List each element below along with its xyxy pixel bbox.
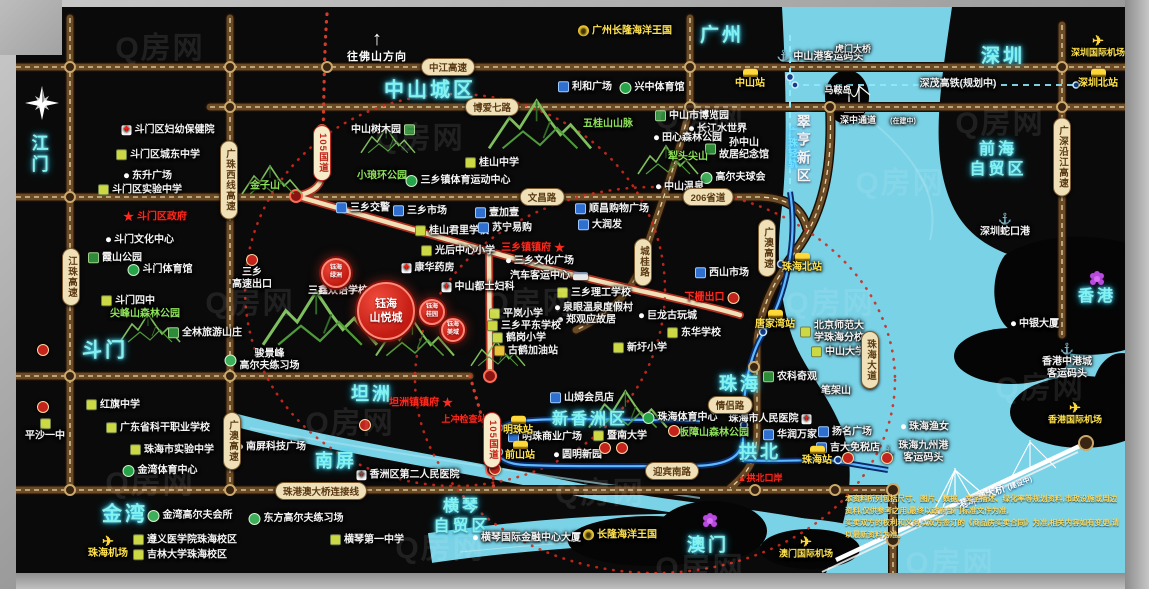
landmark: 农科奇观 [763, 371, 817, 383]
landmark: 高尔夫球会 [701, 172, 766, 184]
landmark-label: 斗门文化中心 [114, 234, 174, 246]
school-icon [40, 418, 51, 429]
landmark-label: 古鹤加油站 [508, 345, 558, 357]
plane-icon: ✈ [102, 535, 114, 547]
landmark-label: 兴中体育馆 [635, 82, 685, 94]
sport-icon [406, 175, 418, 187]
landmark-label: 遵义医学院珠海校区 [147, 534, 237, 546]
gas-icon [494, 346, 505, 357]
flower-icon [707, 518, 713, 524]
region-label: 中山城区 [384, 79, 476, 104]
landmark: 斗门区城东中学 [116, 149, 200, 161]
landmark: 三乡理工学校 [557, 287, 631, 299]
landmark: 珠海体育中心 [643, 412, 718, 424]
region-label: 广州 [700, 24, 744, 48]
disclaimer-text: 本资料所列包括尺寸、图片、数据、文字描述、绿化率等规划资料,市政设施或周边资料,… [845, 493, 1121, 541]
school-icon [133, 535, 144, 546]
landmark: ⚓香港中港城 客运码头 [1042, 345, 1092, 380]
landmark-label: 三乡交警 [350, 202, 390, 214]
landmark-label: 斗门四中 [115, 295, 155, 307]
landmark-label: 珠海渔女 [909, 421, 949, 433]
train-icon [810, 446, 825, 454]
landmark-label: 北京师范大 学珠海分校 [814, 321, 864, 344]
shop-icon [763, 430, 774, 441]
logo-icon: e [583, 530, 594, 541]
landmark-label: 金子山 [250, 180, 280, 192]
landmark: 北京师范大 学珠海分校 [800, 321, 864, 344]
landmark-label: 大润发 [592, 219, 622, 231]
landmark: 平岚小学 [489, 308, 543, 320]
property-satellite-badge: 钰海 桂园 [419, 299, 445, 325]
road-badge: 迎宾南路 [645, 462, 699, 480]
park-icon [404, 125, 415, 136]
landmark-label: 高尔夫球会 [716, 172, 766, 184]
landmark: 珠海渔女 [901, 421, 949, 433]
landmark-label: 利和广场 [572, 81, 612, 93]
logo-icon: e [578, 26, 589, 37]
dot-icon [106, 238, 111, 243]
road-badge: 105国道 [483, 412, 501, 468]
dot-icon [689, 127, 694, 132]
dot-icon [506, 259, 511, 264]
landmark: 犁头尖山 [668, 151, 708, 163]
property-satellite-badge: 钰海 绿洲 [321, 258, 351, 288]
landmark: 马鞍岛 [824, 85, 851, 95]
landmark: 珠海站 [802, 446, 832, 467]
train-icon [768, 310, 783, 318]
landmark-label: 深茂高铁(规划中) [920, 78, 997, 90]
landmark: ✈深圳国际机场 [1071, 34, 1125, 57]
region-label: 深圳 [981, 45, 1025, 69]
sport-icon [128, 264, 140, 276]
shop-icon [575, 204, 586, 215]
landmark-label: 横琴国际金融中心大厦 [481, 532, 581, 544]
train-icon [795, 253, 810, 261]
toll-icon [728, 292, 740, 304]
landmark: 吉林大学珠海校区 [133, 549, 227, 561]
landmark: 明珠站 [503, 416, 533, 437]
landmark-label: 斗门体育馆 [143, 264, 193, 276]
shop-icon [475, 208, 486, 219]
sport-icon [643, 412, 655, 424]
road-badge: 中江高速 [421, 58, 475, 76]
landmark: 虎门大桥 [835, 44, 871, 54]
landmark: 华润万家 [763, 429, 817, 441]
landmark-label: 壹加壹 [489, 207, 519, 219]
star-icon: ★ [442, 398, 453, 409]
landmark: 深圳北站 [1078, 69, 1118, 90]
landmark-label: 上冲检查站 [441, 414, 486, 424]
landmark-label: 平岚小学 [503, 308, 543, 320]
watermark: Q房网 [955, 98, 1044, 142]
road-badge: 广澳高速 [223, 412, 241, 470]
landmark-label: 暨南大学 [607, 430, 647, 442]
park-icon [655, 111, 666, 122]
landmark: 平沙一中 [25, 418, 65, 442]
school-icon [800, 327, 811, 338]
landmark: 东华学校 [667, 327, 721, 339]
landmark-label: 南屏科技广场 [246, 441, 306, 453]
landmark: 全林旅游山庄 [168, 327, 242, 339]
shop-icon [393, 206, 404, 217]
landmark-label: 珠海站 [802, 455, 832, 467]
hosp-icon [802, 414, 812, 424]
landmark: 珠海市人民医院 [729, 413, 812, 425]
dot-icon [656, 185, 661, 190]
school-icon [487, 321, 498, 332]
landmark: 壹加壹 [475, 207, 519, 219]
flower-icon [1094, 276, 1100, 282]
shop-icon [695, 268, 706, 279]
landmark-label: 珠海九州港 客运码头 [898, 441, 948, 464]
road-badge: 江珠高速 [62, 248, 80, 306]
landmark: 骏景峰 高尔夫练习场 [225, 349, 300, 372]
landmark-label: 深圳蛇口港 [980, 226, 1030, 238]
region-label: 坦洲 [351, 383, 393, 406]
landmark-label: 香港中港城 客运码头 [1042, 357, 1092, 380]
shop-icon [818, 427, 829, 438]
toll-icon [842, 452, 854, 464]
landmark-label: 广东省科干职业学校 [120, 422, 210, 434]
landmark: 小琅环公园 [357, 170, 407, 182]
landmark: 中山大学 [811, 346, 865, 358]
landmark: 唐家湾站 [755, 310, 795, 331]
landmark: 利和广场 [558, 81, 612, 93]
landmark-label: 深中通道 [840, 115, 876, 125]
landmark-label: 三乡 高速出口 [232, 267, 272, 290]
landmark: 南屏科技广场 [238, 441, 306, 453]
road-badge: 城桂路 [634, 238, 652, 286]
landmark: e长隆海洋王国 [583, 529, 657, 541]
landmark-label: 三乡平东学校 [501, 320, 561, 332]
landmark-label: 香洲区第二人民医院 [370, 469, 460, 481]
landmark: 坦洲镇镇府★ [389, 397, 453, 409]
landmark-label: ▲拱北口岸 [738, 473, 783, 483]
landmark-label: 尖峰山森林公园 [110, 308, 180, 320]
watermark: Q房网 [785, 278, 874, 322]
road-badge: 珠海大道 [861, 331, 879, 389]
landmark-label: 吉大免税店 [830, 442, 880, 454]
shop-icon [558, 82, 569, 93]
landmark-label: 犁头尖山 [668, 151, 708, 163]
landmark-label: 农科奇观 [777, 371, 817, 383]
dot-icon [554, 453, 559, 458]
landmark-label: 金湾体育中心 [138, 465, 198, 477]
landmark: 暨南大学 [593, 430, 647, 442]
landmark-label: 马鞍岛 [824, 85, 851, 95]
landmark: 中山都士妇科 [442, 281, 515, 293]
toll-icon [881, 452, 893, 464]
school-icon [130, 445, 141, 456]
landmark: 中山市博览园 [655, 110, 729, 122]
landmark-label: 新圩小学 [627, 342, 667, 354]
landmark-label: 三乡镇镇府 [501, 242, 551, 254]
frame-corner [0, 0, 62, 55]
landmark-label: 五桂山山脉 [583, 118, 633, 130]
landmark: 珠海市实验中学 [130, 444, 214, 456]
landmark-label: 山姆会员店 [564, 392, 614, 404]
landmark: 深中通道 [840, 115, 876, 125]
school-icon [101, 296, 112, 307]
train-icon [1091, 69, 1106, 77]
landmark-label: 中银大厦 [1019, 318, 1059, 330]
dot-icon [639, 314, 644, 319]
school-icon [465, 158, 476, 169]
landmark: 东方高尔夫练习场 [249, 513, 344, 525]
landmark: 桂山中学 [465, 157, 519, 169]
landmark-label: 东方高尔夫练习场 [264, 513, 344, 525]
bus-icon [573, 272, 588, 280]
landmark-label: 东升广场 [132, 170, 172, 182]
frame-bottom [0, 573, 1149, 589]
landmark: ✈澳门国际机场 [779, 535, 833, 558]
landmark-label: 下栅出口 [685, 292, 725, 304]
landmark-label: 光后中心小学 [435, 245, 495, 257]
landmark: 中银大厦 [1011, 318, 1059, 330]
map-screenshot: 江门斗门金湾中山城区广州深圳翠亨新区前海 自贸区香港珠海坦洲南屏新香洲区拱北横琴… [0, 0, 1149, 589]
landmark: 郑观应故居 [558, 314, 616, 326]
school-icon [421, 246, 432, 257]
up-arrow-icon: ↑ [347, 30, 407, 48]
landmark: 苏宁易购 [478, 222, 532, 234]
park-icon [88, 253, 99, 264]
landmark [703, 514, 717, 528]
school-icon [492, 333, 503, 344]
landmark-label: 横琴第一中学 [344, 534, 404, 546]
landmark-label: 金湾高尔夫会所 [163, 510, 233, 522]
landmark-label: 红旗中学 [100, 399, 140, 411]
landmark-label: 圆明新园 [562, 449, 602, 461]
landmark: 三乡平东学校 [487, 320, 561, 332]
landmark: 中山树木园 [351, 124, 415, 136]
landmark: 红旗中学 [86, 399, 140, 411]
landmark-label: 霞山公园 [102, 252, 142, 264]
region-label: 香港 [1078, 287, 1116, 307]
landmark: 三乡交警 [336, 202, 390, 214]
plane-icon: ✈ [1069, 401, 1081, 413]
road-badge: 博爱七路 [465, 98, 519, 116]
landmark-label: 桂山中学 [479, 157, 519, 169]
landmark: 斗门文化中心 [106, 234, 174, 246]
plane-icon: ✈ [800, 535, 812, 547]
landmark: 扬名广场 [818, 426, 872, 438]
landmark: 三乡市场 [393, 205, 447, 217]
landmark-label: 明珠站 [503, 425, 533, 437]
golf-icon [225, 354, 237, 366]
landmark-label: 长隆海洋王国 [597, 529, 657, 541]
anchor-icon: ⚓ [777, 52, 791, 63]
region-label: 拱北 [739, 441, 781, 464]
frame-left [0, 0, 16, 589]
landmark-label: 华润万家 [777, 429, 817, 441]
hosp-icon [122, 125, 132, 135]
shop-icon [478, 223, 489, 234]
road-badge: 文昌路 [520, 188, 565, 206]
landmark: 山姆会员店 [550, 392, 614, 404]
dot-icon [901, 425, 906, 430]
landmark: ⚓深圳蛇口港 [980, 214, 1030, 238]
landmark-label: 平沙一中 [25, 430, 65, 442]
landmark: 斗门区妇幼保健院 [122, 124, 215, 136]
landmark-label: (在建中) [890, 118, 916, 126]
landmark: 巨龙古玩城 [639, 310, 697, 322]
landmark: 香洲区第二人民医院 [357, 469, 460, 481]
landmark-label: 珠海机场 [88, 548, 128, 560]
region-label: 江门 [27, 134, 48, 176]
park-icon [763, 372, 774, 383]
region-label: 斗门 [82, 339, 128, 364]
landmark-label: 苏宁易购 [492, 222, 532, 234]
landmark: 斗门四中 [101, 295, 155, 307]
landmark: 兴中体育馆 [620, 82, 685, 94]
school-icon [86, 400, 97, 411]
landmark-label: 斗门区政府 [137, 211, 187, 223]
landmark: 中山站 [735, 69, 765, 90]
landmark-label: 斗门区实验中学 [112, 184, 182, 196]
train-icon [513, 441, 528, 449]
landmark: 金湾高尔夫会所 [148, 510, 233, 522]
region-label: 金湾 [102, 503, 148, 528]
landmark-label: 三乡市场 [407, 205, 447, 217]
landmark-label: 中山站 [735, 78, 765, 90]
landmark-label: 泉眼温泉度假村 [563, 302, 633, 314]
landmark-label: 扬名广场 [832, 426, 872, 438]
property-main-badge: 钰海 山悦城 [357, 282, 415, 340]
golf-icon [148, 510, 160, 522]
watermark: Q房网 [555, 468, 644, 512]
landmark: ✈香港国际机场 [1048, 401, 1102, 424]
plane-icon: ✈ [1092, 34, 1104, 46]
region-label: 前海 自贸区 [969, 140, 1026, 180]
landmark-label: 东华学校 [681, 327, 721, 339]
dot-icon [124, 174, 129, 179]
toll-icon [668, 425, 680, 437]
landmark-label: 全林旅游山庄 [182, 327, 242, 339]
toll-icon [37, 344, 49, 356]
landmark-label: 深圳北站 [1078, 78, 1118, 90]
anchor-icon: ⚓ [998, 214, 1012, 225]
landmark-label: 孙中山 故居纪念馆 [719, 138, 769, 161]
landmark: 三乡镇镇府★ [501, 242, 565, 254]
school-icon [133, 550, 144, 561]
landmark-label: 小琅环公园 [357, 170, 407, 182]
road-badge: 206省道 [683, 188, 734, 206]
landmark-label: 板障山森林公园 [679, 427, 749, 439]
school-icon [557, 288, 568, 299]
landmark: 顺昌购物广场 [575, 203, 649, 215]
region-label: 南屏 [315, 450, 357, 473]
landmark-label: 虎门大桥 [835, 44, 871, 54]
landmark-label: 斗门区妇幼保健院 [135, 124, 215, 136]
landmark-label: 吉林大学珠海校区 [147, 549, 227, 561]
shop-icon [336, 203, 347, 214]
landmark: 西山市场 [695, 267, 749, 279]
train-icon [511, 416, 526, 424]
landmark: 孙中山 故居纪念馆 [705, 138, 769, 161]
landmark-label: 康华药房 [415, 262, 455, 274]
landmark: 珠海北站 [782, 253, 822, 274]
road-badge: 广珠西线高速 [220, 141, 238, 220]
landmark-label: 三乡文化广场 [514, 255, 574, 267]
school-icon [330, 535, 341, 546]
landmark: 斗门体育馆 [128, 264, 193, 276]
landmark: 斗门区实验中学 [98, 184, 182, 196]
landmark: 尖峰山森林公园 [110, 308, 180, 320]
landmark-label: 三乡镇体育运动中心 [421, 175, 511, 187]
landmark-label: 斗门区城东中学 [130, 149, 200, 161]
watermark: Q房网 [855, 158, 944, 202]
shop-icon [578, 220, 589, 231]
landmark: 光后中心小学 [421, 245, 495, 257]
anchor-icon: ⚓ [1060, 345, 1074, 356]
road-badge: 珠港澳大桥连接线 [275, 482, 367, 500]
region-label: 横琴 自贸区 [433, 497, 490, 537]
landmark-label: 珠海体育中心 [658, 412, 718, 424]
landmark: 新圩小学 [613, 342, 667, 354]
train-icon [743, 69, 758, 77]
landmark: 泉眼温泉度假村 [555, 302, 633, 314]
landmark: 板障山森林公园 [679, 427, 749, 439]
toll-icon [616, 442, 628, 454]
landmark-label: 笔架山 [821, 385, 851, 397]
landmark-label: 顺昌购物广场 [589, 203, 649, 215]
school-icon [593, 431, 604, 442]
landmark-label: 广州长隆海洋王国 [592, 25, 672, 37]
landmark-label: 骏景峰 高尔夫练习场 [240, 349, 300, 372]
landmark-label: 巨龙古玩城 [647, 310, 697, 322]
frame-right [1125, 0, 1149, 589]
landmark: ✈珠海机场 [88, 535, 128, 560]
landmark-label: 中山树木园 [351, 124, 401, 136]
region-label: 新香洲区 [552, 410, 628, 430]
school-icon [811, 347, 822, 358]
school-icon [106, 423, 117, 434]
toll-icon [246, 254, 258, 266]
landmark: 五桂山山脉 [583, 118, 633, 130]
toll-icon [359, 419, 371, 431]
toll-icon [37, 401, 49, 413]
road-badge: 广珠轻轨 [783, 120, 799, 176]
landmark: 三乡 高速出口 [232, 254, 272, 290]
hosp-icon [402, 263, 412, 273]
landmark: 三乡文化广场 [506, 255, 574, 267]
dot-icon [473, 536, 478, 541]
landmark-label: 珠海北站 [782, 262, 822, 274]
road-badge: 广澳高速 [758, 219, 776, 277]
landmark: 汽车客运中心 [510, 270, 588, 282]
landmark-label: 前山站 [505, 450, 535, 462]
landmark-label: 唐家湾站 [755, 319, 795, 331]
landmark [1090, 272, 1104, 286]
hosp-icon [357, 470, 367, 480]
landmark: (在建中) [890, 118, 916, 126]
landmark: 三乡镇体育运动中心 [406, 175, 511, 187]
dot-icon [1011, 322, 1016, 327]
landmark-label: 西山市场 [709, 267, 749, 279]
toll-icon [599, 442, 611, 454]
landmark-label: 深圳国际机场 [1071, 47, 1125, 57]
landmark-label: 中山都士妇科 [455, 281, 515, 293]
landmark: 鹤岗小学 [492, 332, 546, 344]
landmark: 上冲检查站 [441, 414, 486, 424]
landmark: 笔架山 [821, 385, 851, 397]
road-badge: 105国道 [313, 125, 331, 181]
school-icon [667, 328, 678, 339]
landmark: ★斗门区政府 [123, 211, 187, 223]
landmark: 深茂高铁(规划中) [920, 78, 997, 90]
school-icon [98, 185, 109, 196]
golf-icon [249, 513, 261, 525]
